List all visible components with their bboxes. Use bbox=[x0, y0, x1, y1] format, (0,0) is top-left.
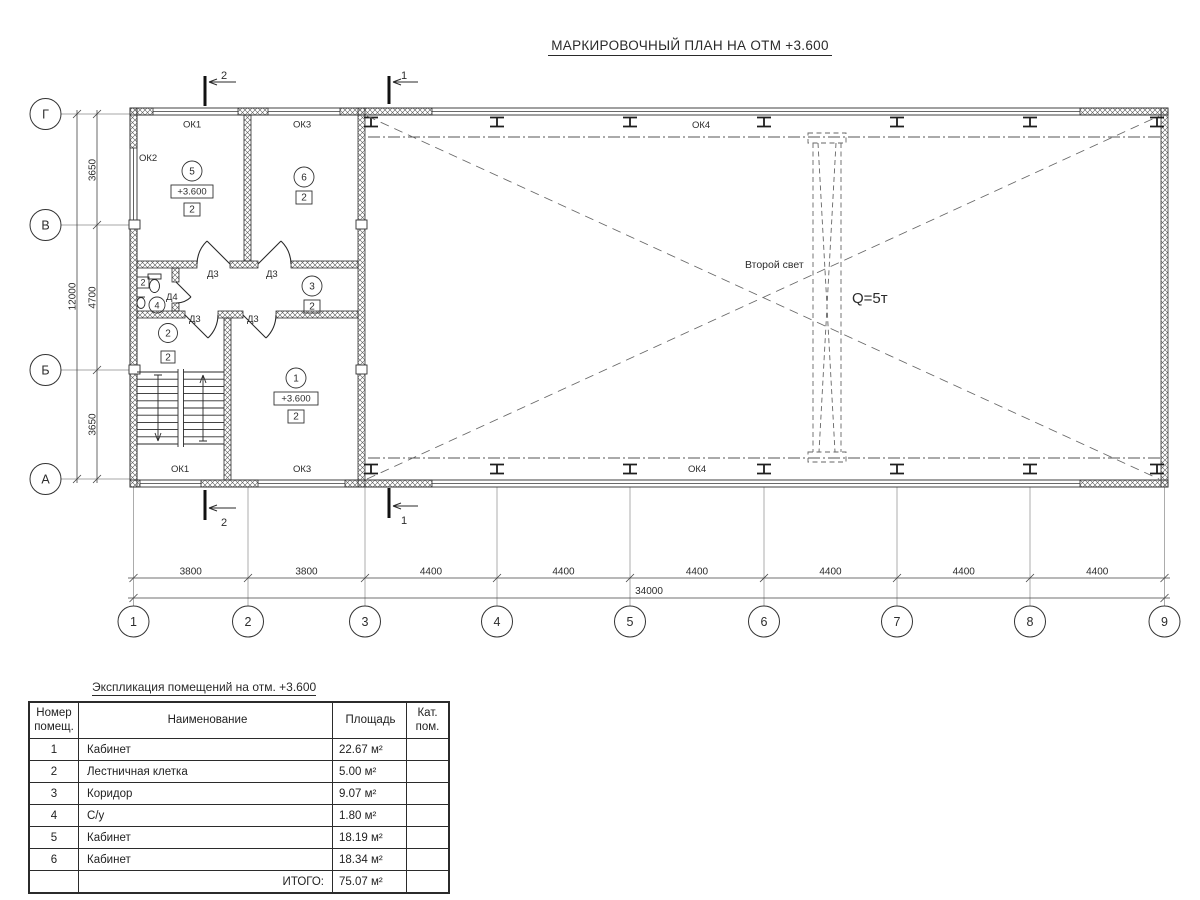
room-cat-cell bbox=[407, 805, 450, 827]
window-ok2-label: ОК2 bbox=[139, 153, 157, 164]
room-name-cell: Кабинет bbox=[79, 827, 333, 849]
toilet-icon bbox=[148, 274, 161, 293]
room-3-category: 2 bbox=[309, 302, 315, 313]
room-number-cell: 6 bbox=[29, 849, 79, 871]
room-6-category: 2 bbox=[301, 193, 307, 204]
room-4-number: 4 bbox=[154, 301, 159, 311]
axis-7: 7 bbox=[894, 615, 901, 629]
window-ok3-bottom-label: ОК3 bbox=[293, 464, 311, 475]
header-room-number: Номерпомещ. bbox=[29, 702, 79, 739]
axis-4: 4 bbox=[494, 615, 501, 629]
dim-b-a: 3650 bbox=[88, 413, 99, 436]
axis-1: 1 bbox=[130, 615, 137, 629]
room-number-cell: 3 bbox=[29, 783, 79, 805]
door-d3-label-3: Д3 bbox=[189, 314, 201, 325]
room-name-cell: Коридор bbox=[79, 783, 333, 805]
total-empty-cell bbox=[29, 871, 79, 894]
header-category: Кат.пом. bbox=[407, 702, 450, 739]
staircase bbox=[137, 369, 224, 447]
door-d3-label-2: Д3 bbox=[266, 269, 278, 280]
axis-2: 2 bbox=[245, 615, 252, 629]
room-name-cell: С/у bbox=[79, 805, 333, 827]
total-row: ИТОГО: 75.07 м² bbox=[29, 871, 449, 894]
room-5-elevation: +3.600 bbox=[177, 187, 206, 198]
room-4-category: 2 bbox=[140, 278, 145, 288]
table-row: 3 Коридор 9.07 м² bbox=[29, 783, 449, 805]
window-ok3-top-label: ОК3 bbox=[293, 120, 311, 131]
door-d4-label: Д4 bbox=[166, 292, 178, 303]
masonry-walls bbox=[130, 108, 1168, 487]
door-d3-label-4: Д3 bbox=[247, 314, 259, 325]
room-name-cell: Кабинет bbox=[79, 739, 333, 761]
dim-g-v: 3650 bbox=[88, 158, 99, 181]
table-row: 5 Кабинет 18.19 м² bbox=[29, 827, 449, 849]
section-1-label-bottom: 1 bbox=[401, 515, 407, 527]
window-ok4-top-label: ОК4 bbox=[692, 120, 710, 131]
crane-capacity-label: Q=5т bbox=[852, 290, 888, 307]
window-ok1-bottom-label: ОК1 bbox=[171, 464, 189, 475]
axis-6: 6 bbox=[761, 615, 768, 629]
total-label-cell: ИТОГО: bbox=[79, 871, 333, 894]
room-area-cell: 22.67 м² bbox=[333, 739, 407, 761]
schedule-table: Номерпомещ. Наименование Площадь Кат.пом… bbox=[28, 701, 450, 894]
room-6-number: 6 bbox=[301, 173, 307, 184]
total-area-cell: 75.07 м² bbox=[333, 871, 407, 894]
axis-g: Г bbox=[42, 108, 49, 122]
void-diagonals bbox=[367, 116, 1159, 479]
window-ok4-bottom-label: ОК4 bbox=[688, 464, 706, 475]
axis-bubbles-left bbox=[30, 99, 61, 495]
room-cat-cell bbox=[407, 739, 450, 761]
drawing-sheet: МАРКИРОВОЧНЫЙ ПЛАН НА ОТМ +3.600 bbox=[0, 0, 1200, 900]
section-2-label-bottom: 2 bbox=[221, 517, 227, 529]
header-area: Площадь bbox=[333, 702, 407, 739]
room-number-cell: 2 bbox=[29, 761, 79, 783]
dim-v-b: 4700 bbox=[88, 286, 99, 309]
floor-plan-canvas: 2 1 2 1 3800 3800 4400 4400 4400 4400 44… bbox=[0, 0, 1200, 660]
room-5-category: 2 bbox=[189, 205, 195, 216]
axis-b: Б bbox=[41, 364, 49, 378]
room-cat-cell bbox=[407, 849, 450, 871]
axis-v: В bbox=[41, 219, 49, 233]
dim-6-7: 4400 bbox=[819, 567, 842, 578]
wall-bands bbox=[130, 108, 1168, 487]
room-schedule: Экспликация помещений на отм. +3.600 Ном… bbox=[28, 680, 428, 894]
room-area-cell: 9.07 м² bbox=[333, 783, 407, 805]
dimension-lines bbox=[73, 110, 1170, 602]
room-area-cell: 18.19 м² bbox=[333, 827, 407, 849]
schedule-title-text: Экспликация помещений на отм. +3.600 bbox=[92, 680, 316, 696]
room-3-number: 3 bbox=[309, 282, 315, 293]
dim-total-bottom: 34000 bbox=[635, 586, 663, 597]
dim-1-2: 3800 bbox=[180, 567, 203, 578]
table-row: 4 С/у 1.80 м² bbox=[29, 805, 449, 827]
room-name-cell: Кабинет bbox=[79, 849, 333, 871]
room-1-category: 2 bbox=[293, 412, 299, 423]
room-number-cell: 4 bbox=[29, 805, 79, 827]
room-1-number: 1 bbox=[293, 374, 299, 385]
room-area-cell: 1.80 м² bbox=[333, 805, 407, 827]
total-cat-cell bbox=[407, 871, 450, 894]
room-2-category: 2 bbox=[165, 353, 171, 364]
room-area-cell: 5.00 м² bbox=[333, 761, 407, 783]
dim-5-6: 4400 bbox=[686, 567, 709, 578]
axis-bubbles-bottom bbox=[118, 606, 1180, 637]
table-row: 2 Лестничная клетка 5.00 м² bbox=[29, 761, 449, 783]
room-number-cell: 5 bbox=[29, 827, 79, 849]
axis-a: А bbox=[41, 473, 50, 487]
header-name: Наименование bbox=[79, 702, 333, 739]
room-5-number: 5 bbox=[189, 167, 195, 178]
axis-9: 9 bbox=[1161, 615, 1168, 629]
schedule-header-row: Номерпомещ. Наименование Площадь Кат.пом… bbox=[29, 702, 449, 739]
room-cat-cell bbox=[407, 783, 450, 805]
section-marks: 2 1 2 1 bbox=[205, 70, 418, 529]
room-name-cell: Лестничная клетка bbox=[79, 761, 333, 783]
table-row: 1 Кабинет 22.67 м² bbox=[29, 739, 449, 761]
dim-2-3: 3800 bbox=[295, 567, 318, 578]
section-1-label-top: 1 bbox=[401, 70, 407, 82]
table-row: 6 Кабинет 18.34 м² bbox=[29, 849, 449, 871]
door-d3-label-1: Д3 bbox=[207, 269, 219, 280]
section-2-label-top: 2 bbox=[221, 70, 227, 82]
room-1-elevation: +3.600 bbox=[281, 394, 310, 405]
window-ok1-top-label: ОК1 bbox=[183, 120, 201, 131]
schedule-title: Экспликация помещений на отм. +3.600 bbox=[92, 680, 428, 696]
dim-7-8: 4400 bbox=[953, 567, 976, 578]
axis-8: 8 bbox=[1027, 615, 1034, 629]
dim-total-left: 12000 bbox=[68, 282, 79, 310]
axis-labels-left: Г В Б А bbox=[41, 108, 50, 487]
hoist-outline bbox=[808, 133, 846, 462]
axis-labels-bottom: 1 2 3 4 5 6 7 8 9 bbox=[130, 615, 1168, 629]
room-2-number: 2 bbox=[165, 329, 171, 340]
axis-3: 3 bbox=[362, 615, 369, 629]
window-glazing bbox=[134, 112, 1081, 484]
dim-8-9: 4400 bbox=[1086, 567, 1109, 578]
sink-icon bbox=[137, 297, 145, 309]
room-number-cell: 1 bbox=[29, 739, 79, 761]
room-area-cell: 18.34 м² bbox=[333, 849, 407, 871]
second-light-label: Второй свет bbox=[745, 259, 804, 271]
room-cat-cell bbox=[407, 761, 450, 783]
room-cat-cell bbox=[407, 827, 450, 849]
dim-3-4: 4400 bbox=[420, 567, 443, 578]
steel-column-icons bbox=[364, 118, 1164, 474]
dim-4-5: 4400 bbox=[552, 567, 575, 578]
axis-5: 5 bbox=[627, 615, 634, 629]
